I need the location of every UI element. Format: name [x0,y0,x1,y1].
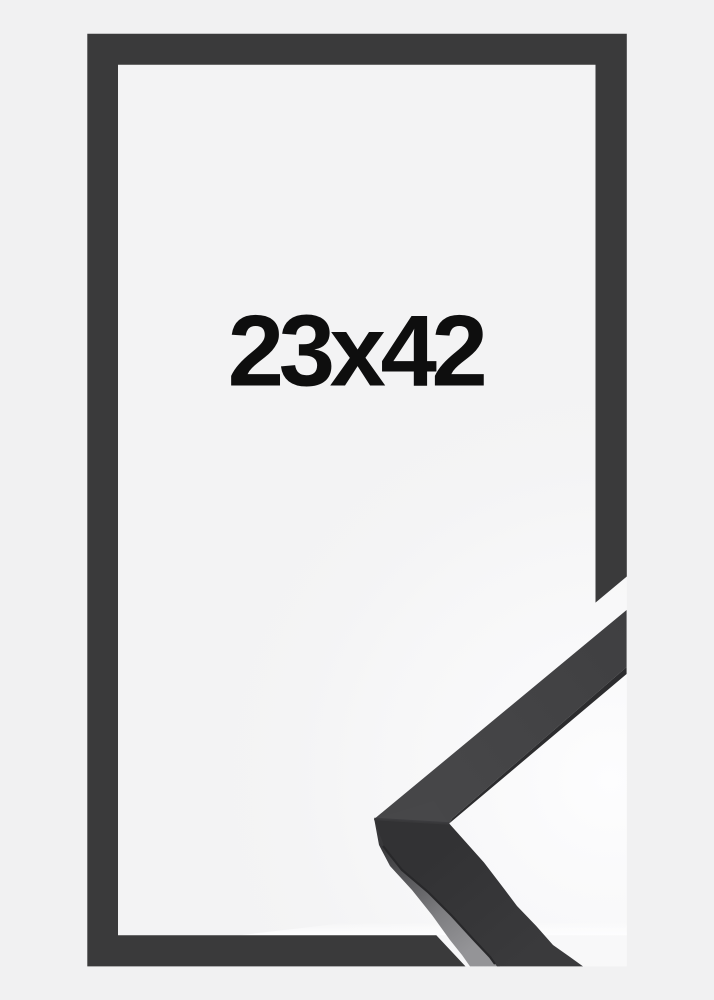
svg-text:23x42: 23x42 [228,293,485,407]
